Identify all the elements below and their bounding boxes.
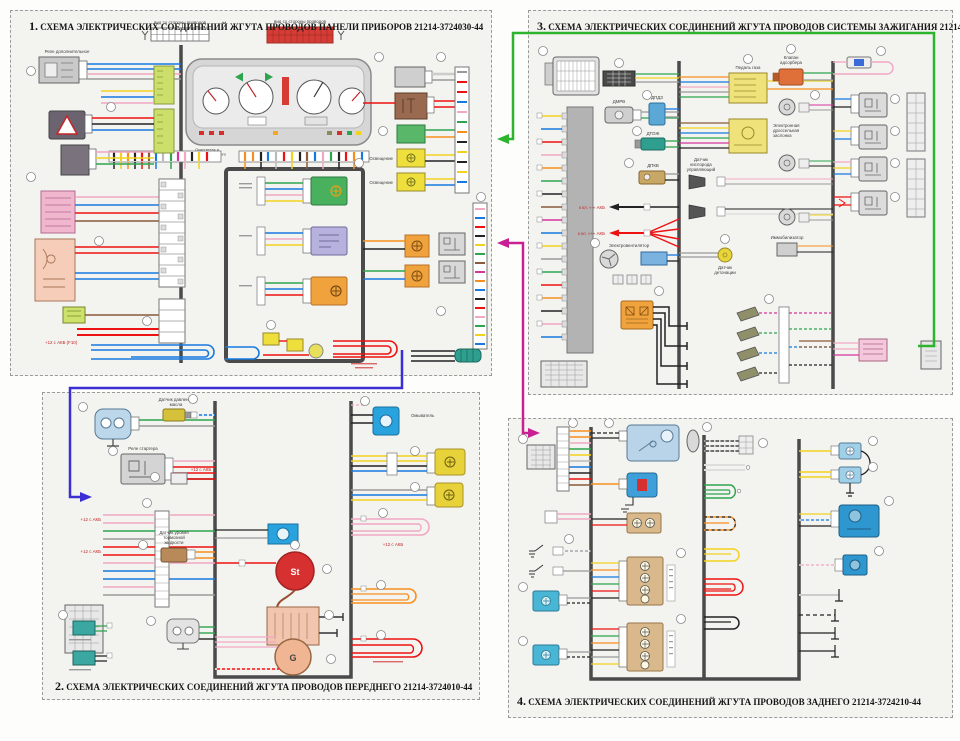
svg-text:управляющий: управляющий bbox=[687, 167, 716, 172]
ignition-switch-connector bbox=[41, 191, 75, 233]
ground-icon bbox=[846, 483, 854, 496]
wiring-diagram-sheet: { "page": {"background": "#fdfdfb", "pan… bbox=[0, 0, 960, 741]
right-gray-module bbox=[395, 67, 455, 87]
svg-text:+12 с АКБ: +12 с АКБ bbox=[81, 517, 102, 522]
svg-text:G: G bbox=[289, 653, 296, 663]
bottom-loop-blue-2 bbox=[225, 347, 259, 359]
column-switch-block bbox=[61, 145, 96, 175]
fuse-box bbox=[159, 179, 185, 287]
right-connector-strip-1 bbox=[455, 67, 469, 193]
coolant-temp-sensor: ДТОЖ bbox=[635, 131, 679, 150]
injectors bbox=[737, 307, 833, 383]
ecu-harness-bar bbox=[562, 107, 593, 353]
relay-socket-grid-1 bbox=[907, 93, 925, 151]
svg-text:Освещение: Освещение bbox=[369, 156, 393, 161]
panel-instrument-harness: 1. СХЕМА ЭЛЕКТРИЧЕСКИХ СОЕДИНЕНИЙ ЖГУТА … bbox=[10, 10, 492, 376]
panel4-number: 4. bbox=[517, 694, 526, 708]
connector-block-green-1 bbox=[154, 66, 174, 104]
panel2-schematic: Реле стартера Датчик давления масла bbox=[43, 393, 479, 683]
relay-socket-grid-2 bbox=[907, 159, 925, 217]
svg-text:Омыватель: Омыватель bbox=[411, 413, 435, 418]
oil-pressure-sensor: Датчик давления масла bbox=[159, 397, 215, 421]
plate-lamp-1 bbox=[799, 443, 861, 459]
svg-text:Реле стартера: Реле стартера bbox=[128, 446, 158, 451]
ecu-connector bbox=[545, 57, 599, 95]
svg-text:ДМРВ: ДМРВ bbox=[613, 99, 626, 104]
switch-green bbox=[303, 177, 347, 205]
left-wire-bundle bbox=[101, 91, 154, 103]
turn-lamp-module bbox=[167, 619, 215, 649]
loop-red bbox=[351, 636, 422, 662]
door-switch-1 bbox=[529, 545, 591, 557]
panel3-number: 3. bbox=[537, 19, 546, 33]
sensor-circle-3 bbox=[779, 209, 833, 225]
rear-grid-connector bbox=[527, 445, 555, 469]
svg-text:+12 с АКБ: +12 с АКБ bbox=[191, 467, 212, 472]
relay-3 bbox=[833, 157, 887, 181]
svg-text:масла: масла bbox=[170, 402, 183, 407]
throttle-position-sensor: ДПДЗ bbox=[649, 95, 679, 125]
generator: G bbox=[215, 637, 311, 675]
lighting-switch-1: Освещение bbox=[369, 149, 455, 167]
ground-runs bbox=[799, 589, 843, 657]
bottom-black-bundle bbox=[411, 351, 455, 361]
relay-1 bbox=[833, 93, 887, 117]
panel-rear-harness: 4. СХЕМА ЭЛЕКТРИЧЕСКИХ СОЕДИНЕНИЙ ЖГУТА … bbox=[508, 418, 953, 718]
starter-motor: St bbox=[215, 552, 314, 590]
panel-front-harness: 2. СХЕМА ЭЛЕКТРИЧЕСКИХ СОЕДИНЕНИЙ ЖГУТА … bbox=[42, 392, 480, 700]
panel2-title: 2. СХЕМА ЭЛЕКТРИЧЕСКИХ СОЕДИНЕНИЙ ЖГУТА … bbox=[55, 679, 472, 694]
relay-4 bbox=[833, 191, 887, 215]
panel3-schematic: ДМРВ ДПДЗ ДТОЖ ДПКВ к кл bbox=[529, 11, 952, 394]
rear-wiper-motor bbox=[799, 505, 879, 537]
svg-text:Электровентилятор: Электровентилятор bbox=[609, 243, 650, 248]
oxygen-sensor-control: Датчик кислорода управляющий bbox=[687, 157, 833, 189]
fuel-level-module bbox=[591, 425, 699, 461]
cigarette-lighter bbox=[363, 93, 455, 119]
panel4-schematic bbox=[509, 419, 952, 697]
maf-sensor: ДМРВ bbox=[605, 99, 679, 123]
electric-fan: Электровентилятор bbox=[600, 243, 679, 268]
sensor-circle-2 bbox=[779, 155, 833, 171]
svg-text:жидкости: жидкости bbox=[164, 540, 184, 545]
svg-text:адсорбера: адсорбера bbox=[780, 60, 802, 65]
switch-green-wires bbox=[239, 177, 303, 205]
switch-lavender-wires bbox=[239, 227, 303, 255]
svg-text:детонации: детонации bbox=[714, 270, 736, 275]
starter-relay: Реле стартера bbox=[121, 446, 215, 484]
connector-block-green-2 bbox=[154, 109, 174, 153]
heater-connector-orange-2 bbox=[363, 265, 429, 287]
plus12-tap: +12 с АКБ bbox=[171, 467, 215, 484]
panel1-title: 1. СХЕМА ЭЛЕКТРИЧЕСКИХ СОЕДИНЕНИЙ ЖГУТА … bbox=[29, 19, 483, 34]
instrument-cluster bbox=[186, 59, 371, 145]
relay-grid-1 bbox=[439, 233, 465, 255]
svg-text:ДПКВ: ДПКВ bbox=[647, 163, 659, 168]
plus12-label: +12 с АКБ (F10) bbox=[45, 340, 78, 345]
ignition-lock bbox=[35, 239, 75, 301]
svg-text:к кл. «-» АКБ: к кл. «-» АКБ bbox=[579, 205, 605, 210]
ignition-coil bbox=[621, 301, 653, 329]
panel2-title-text: СХЕМА ЭЛЕКТРИЧЕСКИХ СОЕДИНЕНИЙ ЖГУТА ПРО… bbox=[66, 682, 472, 692]
hazard-switch bbox=[49, 111, 92, 139]
panel4-title: 4. СХЕМА ЭЛЕКТРИЧЕСКИХ СОЕДИНЕНИЙ ЖГУТА … bbox=[517, 694, 921, 709]
headlamp-1 bbox=[351, 449, 465, 475]
panel3-title: 3. СХЕМА ЭЛЕКТРИЧЕСКИХ СОЕДИНЕНИЙ ЖГУТА … bbox=[537, 19, 960, 34]
crankshaft-sensor: ДПКВ bbox=[639, 163, 679, 184]
adsorber-valve: Клапан адсорбера bbox=[773, 55, 833, 85]
svg-text:St: St bbox=[291, 567, 300, 577]
cluster-pins-right bbox=[239, 151, 369, 169]
switch-orange bbox=[303, 277, 347, 305]
ecu-left-wires bbox=[537, 113, 562, 337]
main-fuse bbox=[833, 57, 893, 74]
svg-text:+12 с АКБ: +12 с АКБ bbox=[81, 549, 102, 554]
rear-lamp-left bbox=[591, 557, 675, 605]
heater-connector-orange-1 bbox=[363, 235, 429, 257]
headlamp-2 bbox=[351, 483, 463, 507]
battery-minus-link: к кл. «-» АКБ bbox=[579, 204, 679, 211]
panel-ignition-harness: 3. СХЕМА ЭЛЕКТРИЧЕСКИХ СОЕДИНЕНИЙ ЖГУТА … bbox=[528, 10, 953, 395]
auxiliary-relay bbox=[39, 57, 87, 83]
hazard-wires bbox=[92, 118, 154, 130]
service-loops bbox=[704, 436, 753, 629]
panel2-number: 2. bbox=[55, 679, 64, 693]
svg-text:+12 с АКБ: +12 с АКБ bbox=[383, 542, 404, 547]
svg-text:ДТОЖ: ДТОЖ bbox=[647, 131, 660, 136]
right-edge-connector bbox=[473, 203, 487, 349]
svg-text:заслонка: заслонка bbox=[773, 133, 792, 138]
trip-lcd bbox=[305, 117, 327, 125]
switch-lavender bbox=[303, 227, 347, 255]
antenna-barrel-connector bbox=[455, 349, 481, 362]
rear-lamp-right bbox=[591, 623, 675, 671]
panel1-number: 1. bbox=[29, 19, 38, 33]
connector-small-yellowgreen bbox=[63, 307, 85, 323]
relay-grid-2 bbox=[439, 261, 465, 283]
loop-pink: +12 с АКБ bbox=[351, 516, 429, 547]
svg-text:ДПДЗ: ДПДЗ bbox=[651, 95, 663, 100]
center-indicator-bar bbox=[282, 77, 289, 105]
knock-sensor: Датчик детонации bbox=[679, 248, 736, 275]
fuel-pump bbox=[591, 473, 657, 512]
gas-pedal: Педаль газа bbox=[679, 65, 833, 103]
washer-pump bbox=[215, 524, 298, 544]
switch-small-green bbox=[397, 125, 455, 143]
relay-2 bbox=[833, 125, 887, 149]
rear-main-connector bbox=[557, 427, 591, 491]
ground-icon bbox=[621, 497, 633, 512]
odometer-lcd bbox=[248, 117, 266, 125]
rear-washer-pump bbox=[799, 555, 867, 575]
pink-feed bbox=[545, 511, 591, 523]
side-marker-1 bbox=[533, 591, 591, 611]
washer-motor: Омыватель bbox=[351, 405, 435, 435]
panel4-title-text: СХЕМА ЭЛЕКТРИЧЕСКИХ СОЕДИНЕНИЙ ЖГУТА ПРО… bbox=[528, 697, 921, 707]
switch-orange-wires bbox=[239, 277, 303, 305]
relay-aux-label: Реле дополнительное bbox=[45, 49, 90, 54]
svg-text:к кл. «+» АКБ: к кл. «+» АКБ bbox=[578, 231, 605, 236]
svg-text:Педаль газа: Педаль газа bbox=[736, 65, 761, 70]
svg-text:Освещение: Освещение bbox=[369, 180, 393, 185]
panel1-title-text: СХЕМА ЭЛЕКТРИЧЕСКИХ СОЕДИНЕНИЙ ЖГУТА ПРО… bbox=[40, 22, 483, 32]
license-lamp-module bbox=[591, 513, 661, 533]
side-marker-2 bbox=[533, 645, 591, 665]
bottom-left-connector bbox=[541, 361, 587, 387]
sensor-circle-1 bbox=[779, 99, 833, 115]
fuse-box-lower bbox=[159, 299, 185, 343]
temp-sensor-2 bbox=[69, 651, 112, 670]
spark-plug-wires bbox=[653, 307, 679, 384]
door-switch-2 bbox=[529, 565, 591, 577]
diagnostic-connector bbox=[603, 71, 679, 86]
panel3-title-text: СХЕМА ЭЛЕКТРИЧЕСКИХ СОЕДИНЕНИЙ ЖГУТА ПРО… bbox=[548, 22, 960, 32]
panel1-schematic: вид со стороны проводов вид со стороны п… bbox=[11, 11, 491, 375]
immobilizer: Иммобилизатор bbox=[771, 235, 833, 256]
small-connector-trio bbox=[613, 275, 651, 284]
bottom-yellow-modules bbox=[263, 333, 323, 358]
cluster-pins-left bbox=[109, 151, 221, 169]
oval-connector bbox=[687, 430, 699, 452]
svg-text:Иммобилизатор: Иммобилизатор bbox=[771, 235, 804, 240]
oxygen-sensor-diagnostic bbox=[689, 205, 833, 219]
electronic-throttle: Электронная дроссельная заслонка bbox=[679, 119, 800, 153]
bottom-loop-blue bbox=[91, 345, 214, 359]
lighting-switch-2: Освещение bbox=[369, 173, 455, 191]
